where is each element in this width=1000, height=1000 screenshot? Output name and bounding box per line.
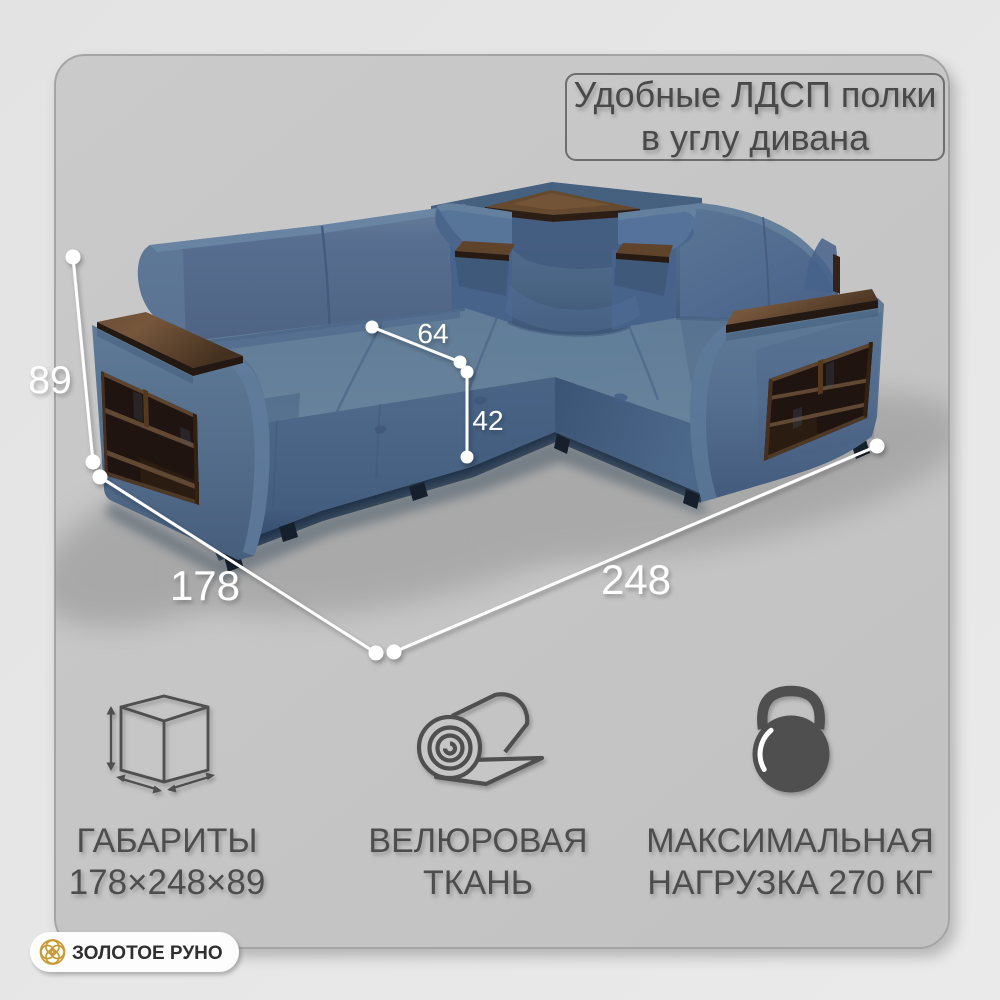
svg-text:в углу дивана: в углу дивана <box>641 117 870 158</box>
svg-text:248: 248 <box>601 556 671 603</box>
svg-text:ТКАНЬ: ТКАНЬ <box>423 864 533 902</box>
svg-text:178: 178 <box>170 562 240 609</box>
svg-text:89: 89 <box>28 359 71 402</box>
svg-text:42: 42 <box>472 405 503 436</box>
svg-text:178×248×89: 178×248×89 <box>69 863 266 902</box>
svg-text:НАГРУЗКА 270 КГ: НАГРУЗКА 270 КГ <box>647 864 932 902</box>
svg-text:ВЕЛЮРОВАЯ: ВЕЛЮРОВАЯ <box>368 822 587 860</box>
svg-text:МАКСИМАЛЬНАЯ: МАКСИМАЛЬНАЯ <box>646 822 934 860</box>
svg-text:ЗОЛОТОЕ РУНО: ЗОЛОТОЕ РУНО <box>72 943 223 964</box>
svg-text:Удобные ЛДСП полки: Удобные ЛДСП полки <box>574 74 937 115</box>
svg-text:64: 64 <box>417 318 448 349</box>
svg-text:ГАБАРИТЫ: ГАБАРИТЫ <box>76 822 257 860</box>
